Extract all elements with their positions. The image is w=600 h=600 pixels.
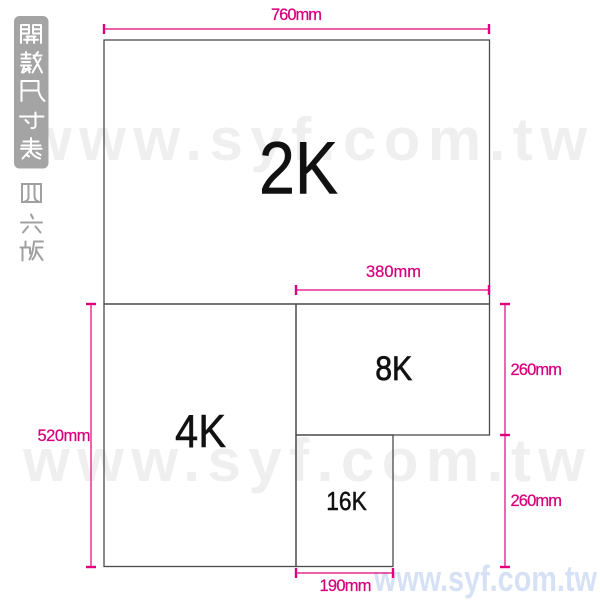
svg-text:190mm: 190mm bbox=[320, 577, 372, 595]
svg-text:760mm: 760mm bbox=[271, 6, 322, 24]
svg-text:520mm: 520mm bbox=[38, 427, 91, 445]
svg-text:260mm: 260mm bbox=[511, 361, 563, 379]
svg-text:4K: 4K bbox=[175, 405, 226, 457]
svg-text:380mm: 380mm bbox=[366, 263, 421, 281]
svg-text:8K: 8K bbox=[375, 350, 412, 388]
svg-text:260mm: 260mm bbox=[511, 492, 563, 510]
svg-text:www.syf.com.tw: www.syf.com.tw bbox=[373, 558, 597, 599]
svg-text:16K: 16K bbox=[326, 486, 367, 516]
svg-text:www.syf.com.tw: www.syf.com.tw bbox=[22, 427, 593, 494]
svg-text:2K: 2K bbox=[259, 127, 338, 210]
